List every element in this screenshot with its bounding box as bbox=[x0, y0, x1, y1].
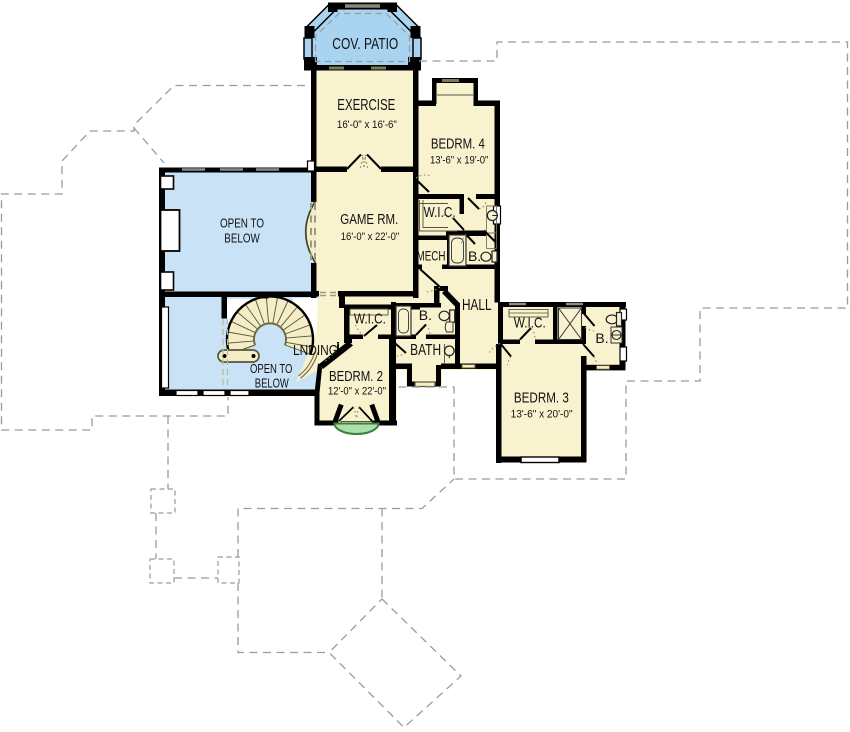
svg-text:B.: B. bbox=[595, 330, 608, 346]
svg-text:MECH: MECH bbox=[417, 248, 446, 264]
svg-text:OPEN TO: OPEN TO bbox=[220, 215, 264, 230]
svg-text:HALL: HALL bbox=[462, 297, 492, 314]
svg-text:BATH: BATH bbox=[410, 342, 441, 359]
svg-text:W.I.C.: W.I.C. bbox=[514, 316, 546, 332]
svg-text:OPEN TO: OPEN TO bbox=[250, 361, 293, 376]
svg-text:LNDING: LNDING bbox=[293, 342, 338, 359]
svg-text:BELOW: BELOW bbox=[255, 375, 290, 390]
svg-text:W.I.C.: W.I.C. bbox=[424, 205, 456, 221]
svg-text:B.: B. bbox=[419, 307, 432, 323]
svg-text:BEDRM. 3: BEDRM. 3 bbox=[514, 391, 569, 407]
svg-text:BEDRM. 2: BEDRM. 2 bbox=[329, 369, 383, 385]
svg-text:12'-0" x 22'-0": 12'-0" x 22'-0" bbox=[328, 386, 386, 398]
svg-text:13'-6" x 20'-0": 13'-6" x 20'-0" bbox=[511, 409, 573, 421]
svg-text:W.I.C.: W.I.C. bbox=[354, 312, 386, 328]
svg-text:BELOW: BELOW bbox=[224, 231, 260, 246]
svg-text:16'-0" x 16'-6": 16'-0" x 16'-6" bbox=[337, 119, 397, 131]
svg-text:13'-6" x 19'-0": 13'-6" x 19'-0" bbox=[430, 155, 489, 167]
svg-text:BEDRM. 4: BEDRM. 4 bbox=[431, 136, 485, 152]
svg-text:16'-0" x 22'-0": 16'-0" x 22'-0" bbox=[341, 231, 400, 243]
svg-text:B.: B. bbox=[468, 248, 481, 264]
svg-text:GAME RM.: GAME RM. bbox=[340, 212, 398, 228]
svg-text:EXERCISE: EXERCISE bbox=[337, 97, 395, 114]
svg-text:COV. PATIO: COV. PATIO bbox=[332, 36, 398, 53]
